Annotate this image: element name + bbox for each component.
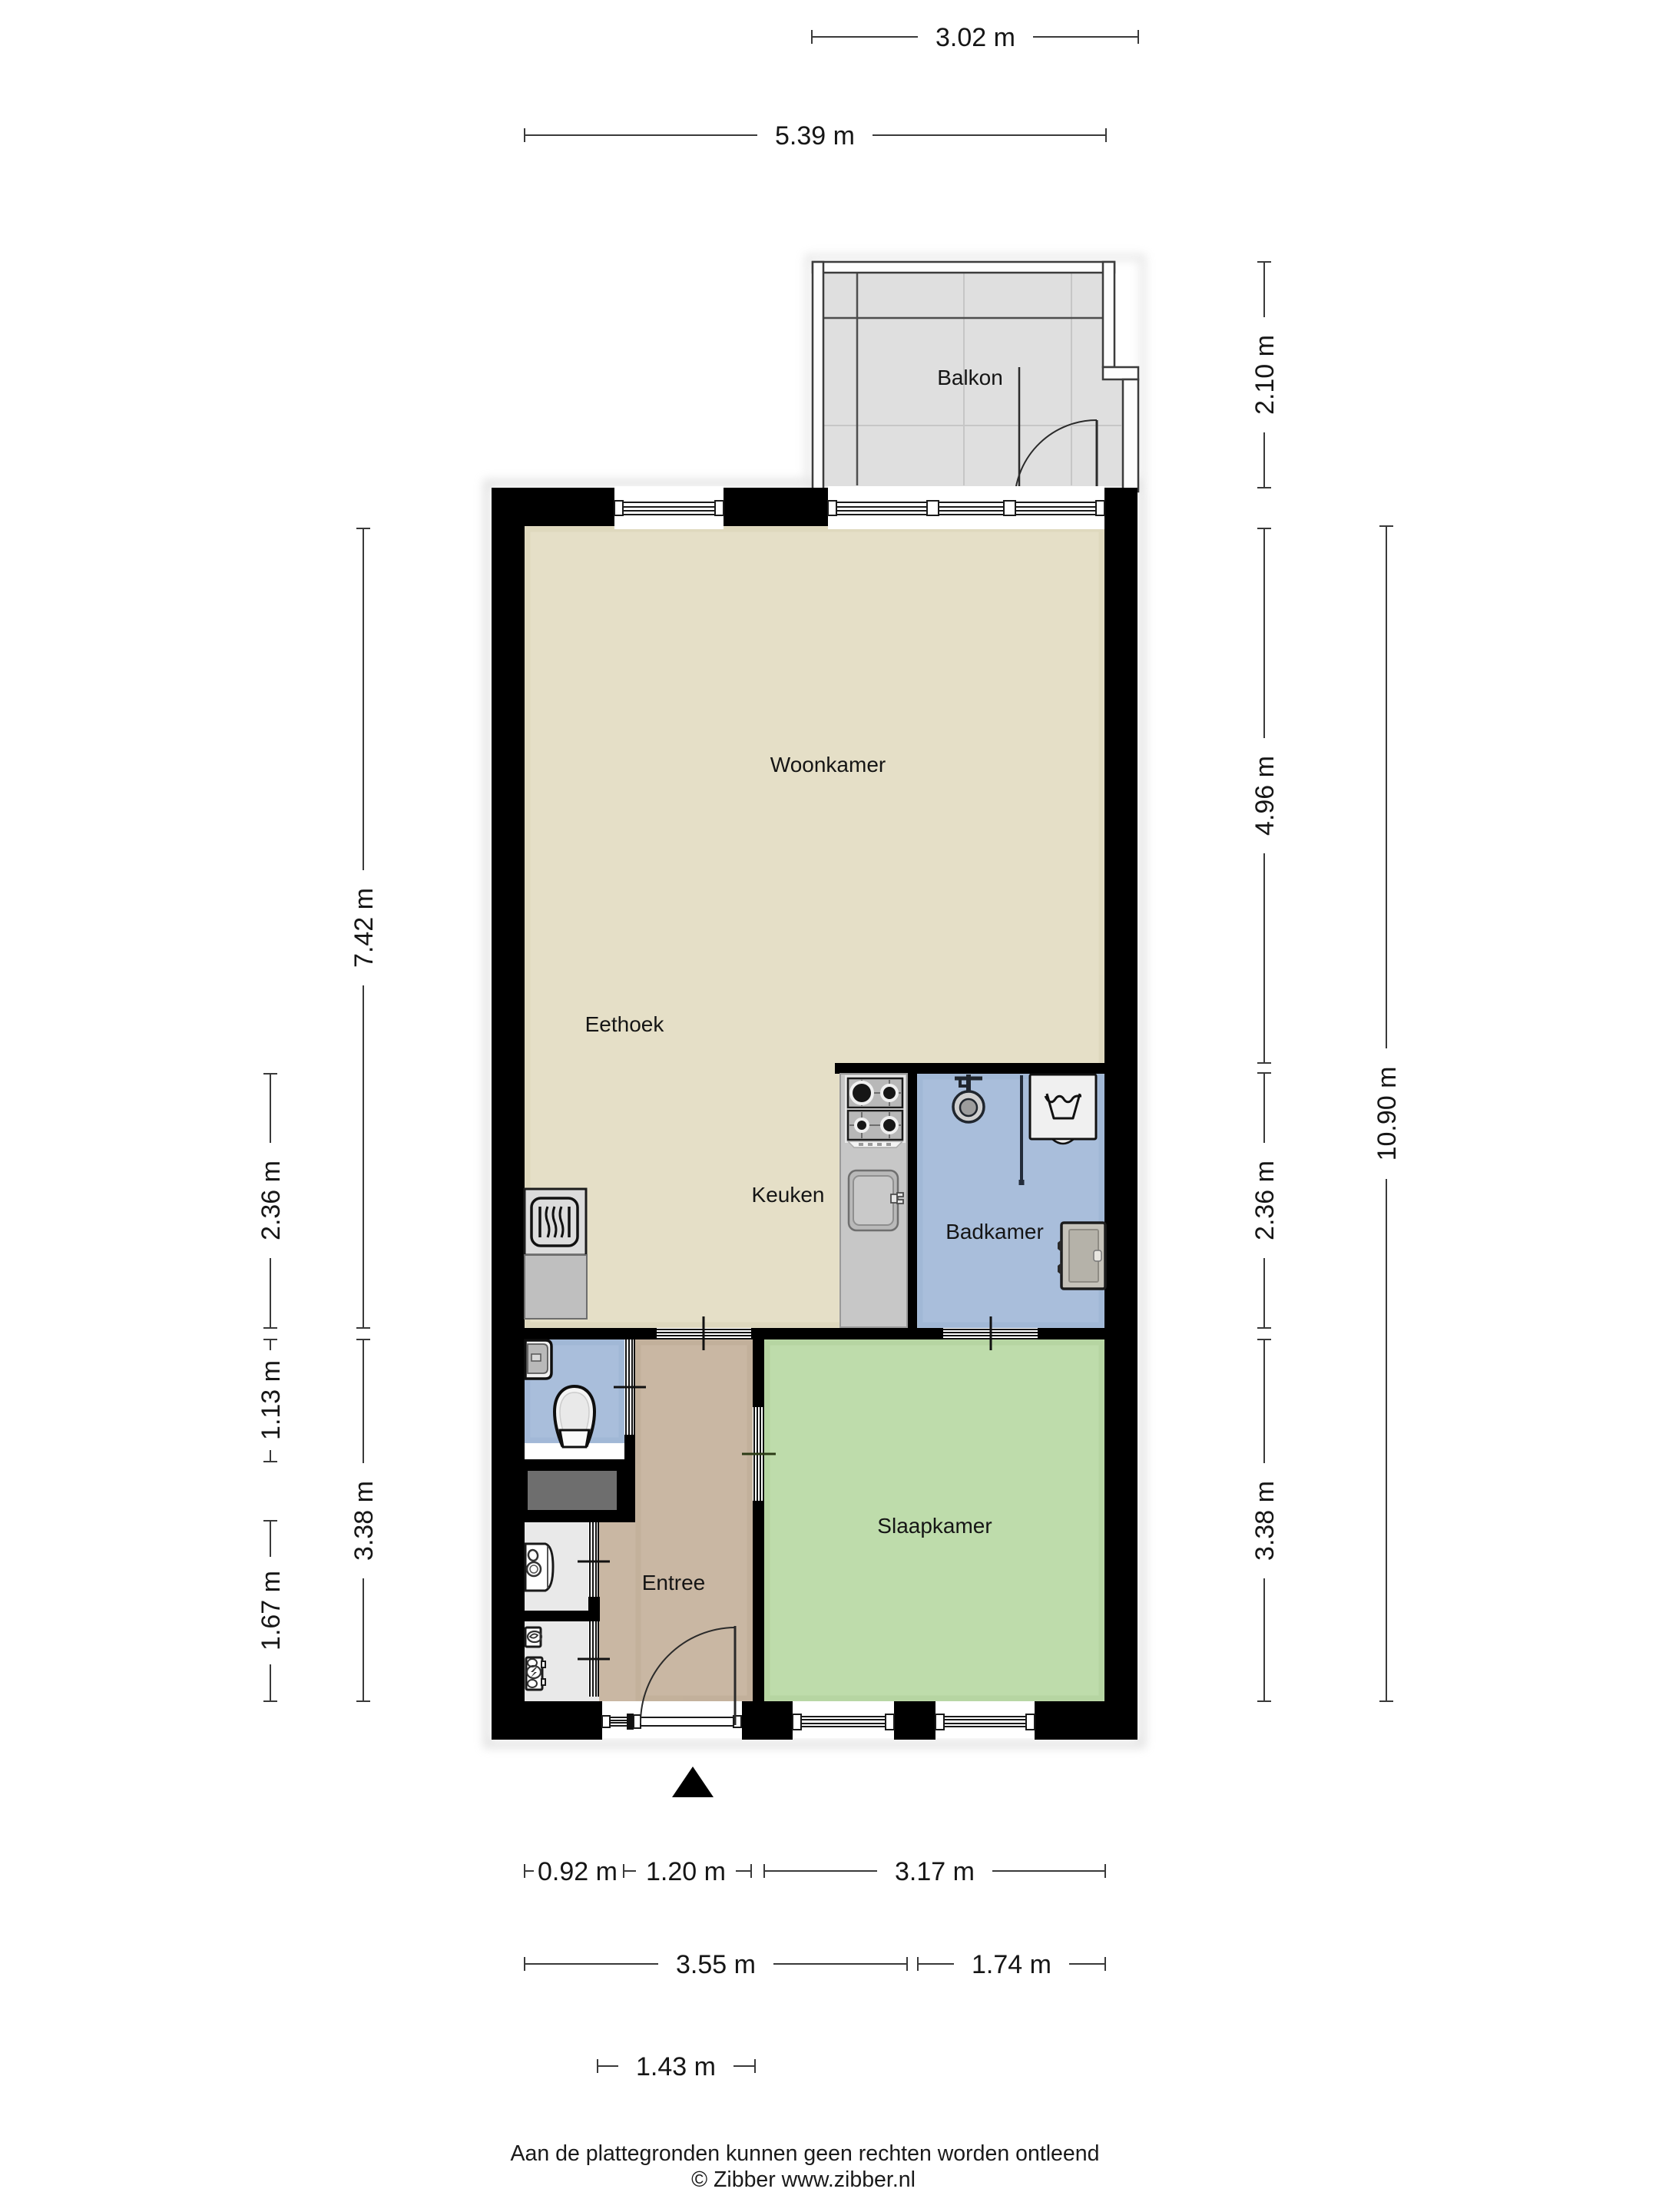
svg-text:Eethoek: Eethoek [585, 1012, 665, 1036]
svg-text:Balkon: Balkon [937, 366, 1003, 389]
svg-text:2.36 m: 2.36 m [257, 1161, 286, 1240]
svg-text:Entree: Entree [642, 1571, 706, 1594]
svg-text:3.38 m: 3.38 m [349, 1481, 379, 1561]
svg-text:Keuken: Keuken [752, 1183, 825, 1207]
svg-text:Aan de plattegronden kunnen ge: Aan de plattegronden kunnen geen rechten… [511, 2141, 1100, 2166]
svg-text:3.38 m: 3.38 m [1250, 1481, 1280, 1561]
svg-text:3.55 m: 3.55 m [676, 1950, 756, 1979]
svg-text:1.67 m: 1.67 m [257, 1571, 286, 1651]
svg-text:4.96 m: 4.96 m [1250, 756, 1280, 836]
svg-text:Slaapkamer: Slaapkamer [877, 1514, 992, 1538]
svg-text:1.20 m: 1.20 m [646, 1857, 726, 1886]
svg-text:1.13 m: 1.13 m [257, 1360, 286, 1440]
svg-text:3.17 m: 3.17 m [895, 1857, 975, 1886]
svg-text:2.10 m: 2.10 m [1250, 335, 1280, 415]
svg-text:1.43 m: 1.43 m [636, 2052, 716, 2081]
svg-text:2.36 m: 2.36 m [1250, 1161, 1280, 1240]
svg-text:Badkamer: Badkamer [945, 1220, 1044, 1243]
svg-text:1.74 m: 1.74 m [972, 1950, 1051, 1979]
svg-text:0.92 m: 0.92 m [538, 1857, 618, 1886]
svg-text:7.42 m: 7.42 m [349, 888, 379, 968]
svg-text:10.90 m: 10.90 m [1373, 1067, 1402, 1161]
svg-text:3.02 m: 3.02 m [935, 23, 1015, 52]
svg-text:Woonkamer: Woonkamer [770, 753, 886, 777]
svg-text:5.39 m: 5.39 m [775, 121, 855, 151]
svg-text:© Zibber www.zibber.nl: © Zibber www.zibber.nl [691, 2167, 916, 2192]
